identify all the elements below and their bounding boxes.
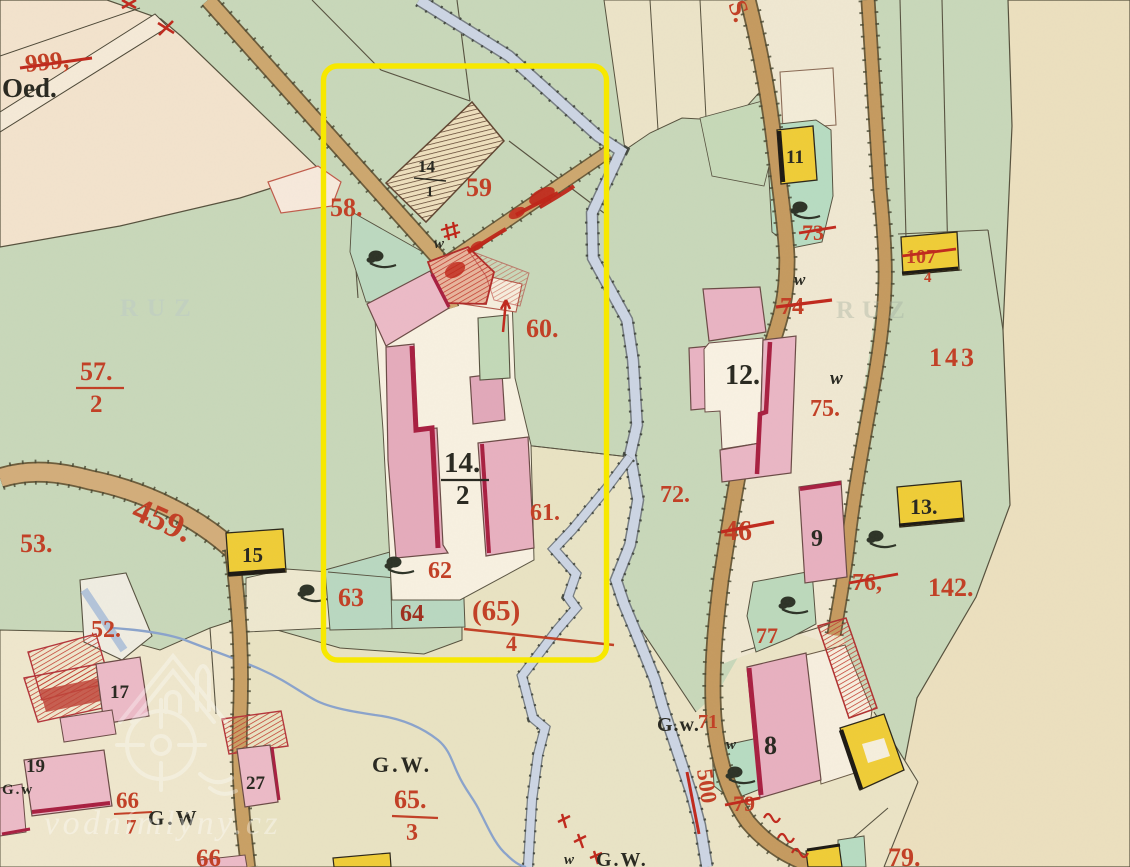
svg-text:vodnímlýny.cz: vodnímlýny.cz	[44, 805, 281, 842]
